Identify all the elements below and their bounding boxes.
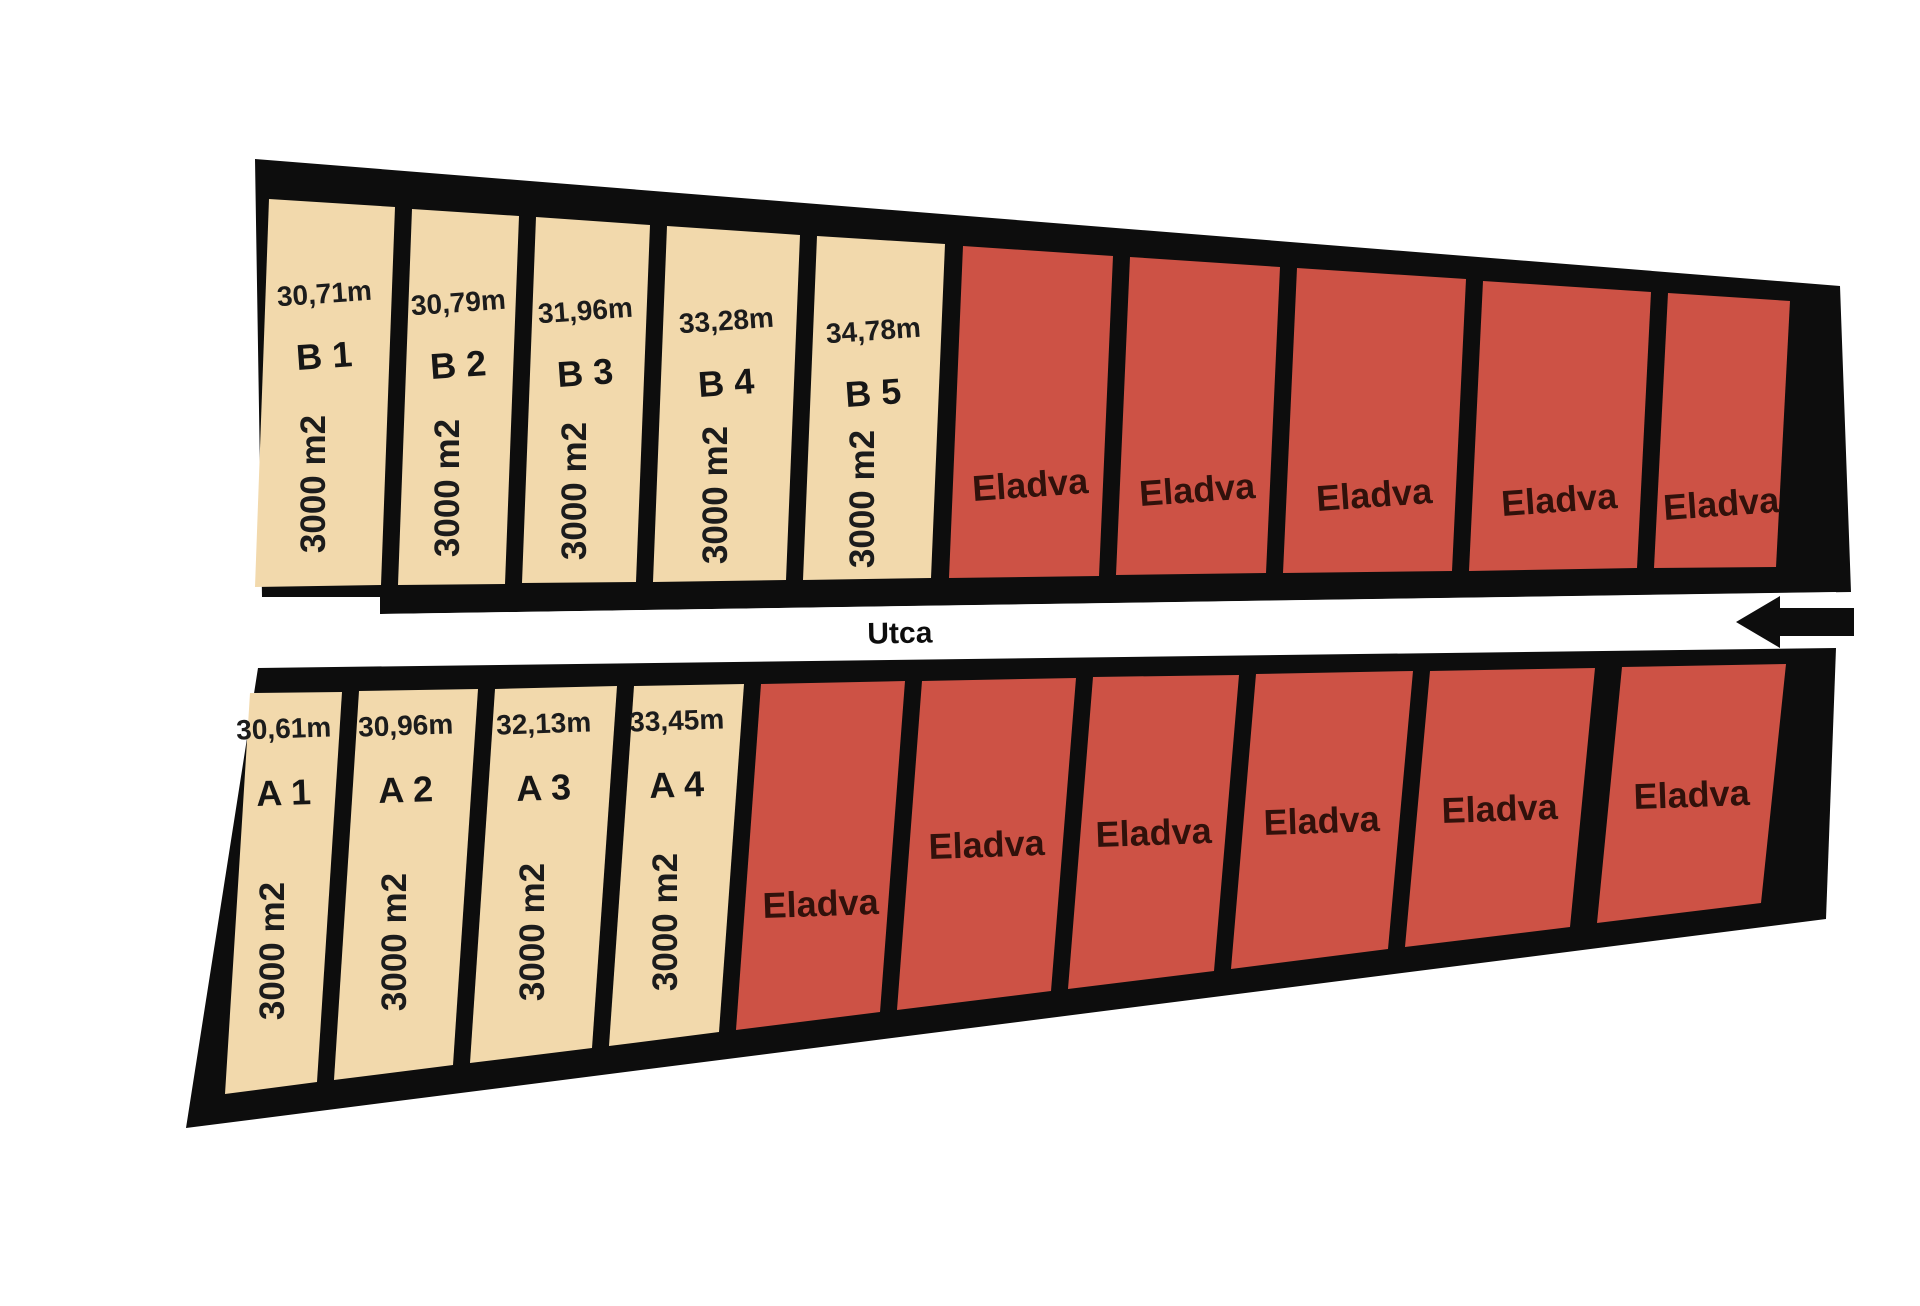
sold-label: Eladva: [1662, 479, 1782, 528]
plot-width-label: 32,13m: [496, 706, 592, 740]
plot-B-3: 31,96mB 33000 m2: [522, 217, 650, 583]
plot-A-10: Eladva: [1597, 664, 1786, 923]
plot-B-9: Eladva: [1469, 281, 1651, 571]
plot-B-1: 30,71mB 13000 m2: [255, 199, 395, 587]
plot-B-10: Eladva: [1654, 293, 1790, 568]
plot-area-label: 3000 m2: [375, 873, 414, 1011]
sold-label: Eladva: [928, 822, 1046, 867]
sold-label: Eladva: [1095, 810, 1213, 855]
plot-A-8: Eladva: [1231, 671, 1413, 969]
plot-area-label: 3000 m2: [843, 430, 882, 568]
plot-name-label: B 5: [844, 370, 903, 415]
plot-area-label: 3000 m2: [513, 863, 552, 1001]
plot-name-label: B 2: [429, 342, 488, 387]
plot-area-label: 3000 m2: [428, 419, 467, 557]
plot-name-label: B 1: [295, 333, 354, 378]
plot-B-2: 30,79mB 23000 m2: [398, 209, 519, 585]
plot-name-label: A 1: [256, 771, 312, 814]
sold-label: Eladva: [1500, 475, 1620, 524]
plot-width-label: 30,71m: [276, 275, 373, 313]
plot-width-label: 31,96m: [537, 292, 634, 330]
sold-label: Eladva: [1441, 786, 1559, 831]
sold-parcel-shape: [1283, 268, 1466, 573]
site-plan-page: 30,71mB 13000 m230,79mB 23000 m231,96mB …: [0, 0, 1920, 1306]
plot-B-6: Eladva: [949, 246, 1113, 578]
plot-name-label: A 3: [516, 766, 572, 809]
plot-B-4: 33,28mB 43000 m2: [653, 226, 800, 582]
sold-parcel-shape: [949, 246, 1113, 578]
plot-width-label: 34,78m: [825, 312, 922, 350]
plot-area-label: 3000 m2: [294, 415, 333, 553]
sold-label: Eladva: [1315, 470, 1435, 519]
sold-label: Eladva: [762, 881, 880, 926]
sold-parcel-shape: [1116, 257, 1280, 575]
sold-label: Eladva: [1633, 772, 1751, 817]
plot-area-label: 3000 m2: [646, 853, 685, 991]
plot-A-7: Eladva: [1068, 675, 1239, 989]
street-label: Utca: [867, 616, 933, 650]
plot-width-label: 30,61m: [236, 711, 332, 745]
plot-area-label: 3000 m2: [696, 426, 735, 564]
plot-name-label: B 4: [697, 360, 756, 405]
plot-name-label: B 3: [556, 350, 615, 395]
plot-B-5: 34,78mB 53000 m2: [803, 236, 945, 580]
sold-parcel-shape: [736, 681, 905, 1030]
plot-width-label: 33,28m: [678, 302, 775, 340]
sold-label: Eladva: [1138, 465, 1258, 514]
plot-B-7: Eladva: [1116, 257, 1280, 575]
plot-width-label: 30,79m: [410, 284, 507, 322]
sold-parcel-shape: [1469, 281, 1651, 571]
plot-area-label: 3000 m2: [253, 882, 292, 1020]
plot-width-label: 30,96m: [358, 708, 454, 742]
plot-name-label: A 2: [378, 768, 434, 811]
sold-label: Eladva: [971, 460, 1091, 509]
plot-B-8: Eladva: [1283, 268, 1466, 573]
plot-name-label: A 4: [649, 763, 705, 806]
plot-A-6: Eladva: [897, 678, 1076, 1010]
plot-A-5: Eladva: [736, 681, 905, 1030]
plot-width-label: 33,45m: [629, 703, 725, 737]
parcel-map: 30,71mB 13000 m230,79mB 23000 m231,96mB …: [0, 0, 1920, 1306]
sold-label: Eladva: [1263, 798, 1381, 843]
plot-A-9: Eladva: [1405, 668, 1595, 947]
plot-area-label: 3000 m2: [555, 422, 594, 560]
